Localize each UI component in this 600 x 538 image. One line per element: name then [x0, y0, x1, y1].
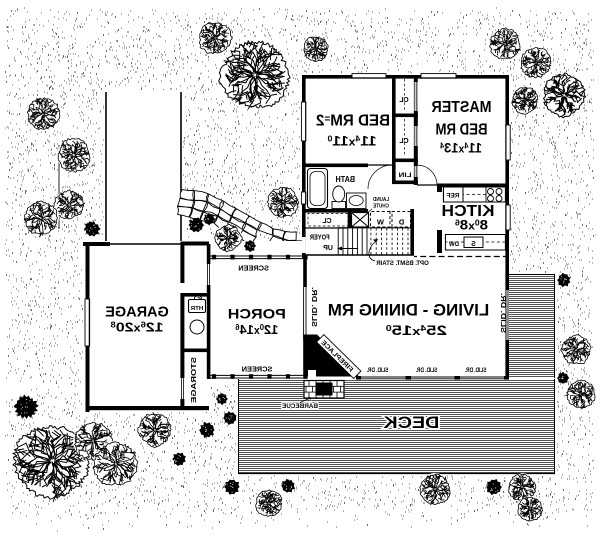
svg-text:120x146: 120x146 — [235, 322, 279, 337]
svg-text:126x208: 126x208 — [110, 320, 164, 335]
svg-text:PORCH: PORCH — [228, 307, 286, 322]
svg-text:LAUND: LAUND — [373, 197, 389, 203]
svg-text:CL: CL — [399, 97, 409, 104]
svg-text:DECK: DECK — [383, 414, 439, 432]
svg-text:SLID. DR.: SLID. DR. — [499, 293, 506, 333]
svg-text:FOYER: FOYER — [310, 235, 330, 242]
svg-text:SLID. DR.: SLID. DR. — [415, 367, 437, 374]
svg-text:W: W — [376, 218, 384, 227]
svg-text:SLID. DR.: SLID. DR. — [310, 287, 317, 327]
svg-text:CL: CL — [322, 218, 332, 225]
svg-text:STORAGE: STORAGE — [191, 357, 198, 403]
svg-text:SCREEN: SCREEN — [242, 367, 273, 374]
svg-text:GARAGE: GARAGE — [105, 305, 169, 321]
svg-text:SLID. DR.: SLID. DR. — [366, 367, 388, 374]
svg-text:UP: UP — [323, 245, 333, 252]
svg-text:OPT. BSMT. STAIR: OPT. BSMT. STAIR — [376, 260, 429, 267]
svg-text:CHUTE: CHUTE — [373, 204, 389, 210]
svg-text:MASTER: MASTER — [431, 99, 491, 116]
svg-text:D: D — [398, 218, 404, 227]
svg-text:S: S — [471, 241, 476, 248]
svg-text:HTR: HTR — [191, 306, 204, 312]
svg-text:BED RM: BED RM — [436, 122, 488, 139]
svg-text:SCREEN: SCREEN — [238, 266, 269, 273]
svg-text:BARBECUE: BARBECUE — [282, 403, 318, 410]
svg-text:LIN: LIN — [398, 172, 411, 179]
svg-text:LIVING - DINING RM: LIVING - DINING RM — [328, 301, 490, 320]
svg-text:DW: DW — [449, 242, 459, 248]
svg-text:CL: CL — [399, 138, 409, 145]
svg-text:BATH: BATH — [336, 174, 356, 184]
svg-text:SLID. DR.: SLID. DR. — [465, 367, 487, 374]
svg-text:REF: REF — [446, 193, 459, 200]
